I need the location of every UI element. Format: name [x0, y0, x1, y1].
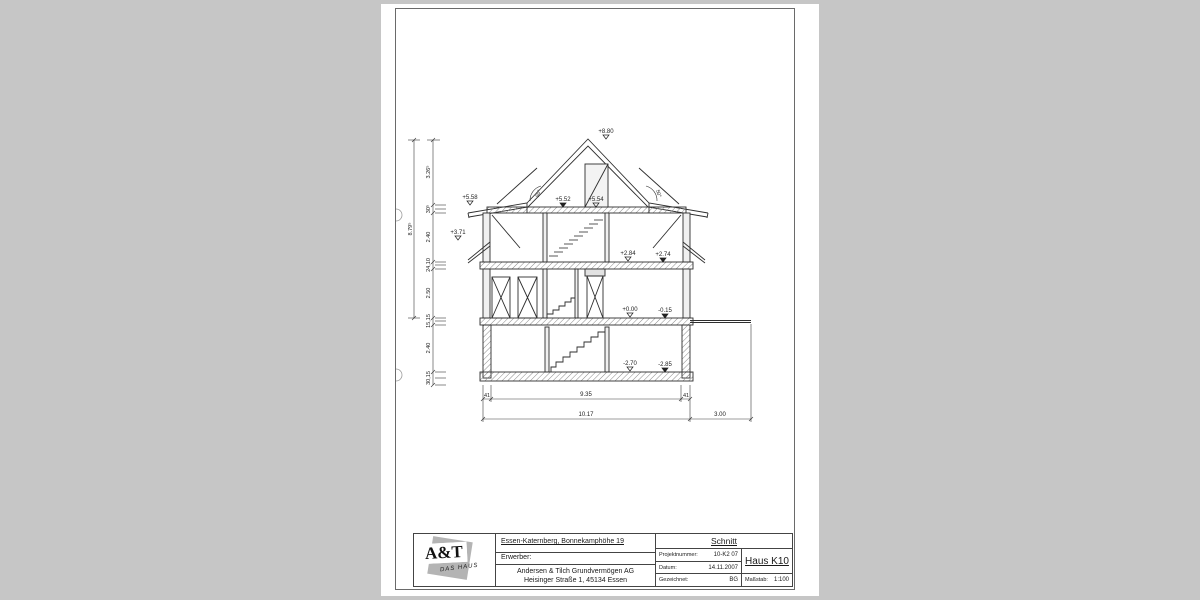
punch-hole-mark	[396, 369, 402, 381]
dim-left-total: 8.79⁵	[407, 223, 414, 236]
project-number-label: Projektnummer:	[659, 552, 698, 558]
project-number-row: Projektnummer: 10-K2 07	[656, 549, 741, 562]
title-block-meta: Schnitt Projektnummer: 10-K2 07 Datum: 1…	[656, 534, 792, 586]
level-attic-b: +5.54	[588, 197, 604, 203]
dim-left-3: 24,10	[426, 258, 432, 272]
section-drawing: +8.80 +5.58 +5.52 +5.54 +3.71 +2.84 +2.7…	[380, 100, 830, 440]
scale-label: Maßstab:	[745, 577, 768, 583]
roof-angle-right: 50°	[654, 189, 662, 198]
title-block-project-info: Essen-Katernberg, Bonnekamphöhe 19 Erwer…	[496, 534, 656, 586]
house-id-text: Haus K10	[745, 556, 789, 567]
drawn-by-row: Gezeichnet: BG	[656, 574, 741, 586]
logo-text: A&T	[421, 542, 468, 564]
level-attic-a: +5.52	[555, 197, 571, 203]
title-block: A&T DAS HAUS Essen-Katernberg, Bonnekamp…	[413, 533, 793, 587]
client-company: Andersen & Tilch Grundvermögen AG Heisin…	[496, 565, 655, 586]
viewer-canvas: +8.80 +5.58 +5.52 +5.54 +3.71 +2.84 +2.7…	[0, 0, 1200, 600]
punch-hole-mark	[396, 209, 402, 221]
level-kg-b: -2.85	[658, 362, 672, 368]
dim-bottom-1017: 10.17	[578, 412, 594, 418]
house-id: Haus K10	[742, 549, 792, 574]
document-title: Schnitt	[656, 534, 792, 549]
dim-left-4: 2.50	[426, 288, 432, 299]
project-number-value: 10-K2 07	[714, 552, 738, 558]
site-address: Essen-Katernberg, Bonnekamphöhe 19	[496, 534, 655, 553]
level-og-a: +2.84	[620, 251, 636, 257]
level-eave-left: +5.58	[462, 195, 478, 201]
dim-bottom-41-right: 41	[683, 393, 689, 399]
dim-left-6: 2.40	[426, 343, 432, 354]
house-id-column: Haus K10 Maßstab: 1:100	[742, 549, 792, 586]
drawn-by-label: Gezeichnet:	[659, 577, 688, 583]
date-label: Datum:	[659, 565, 677, 571]
roof-angle-left: 50°	[535, 189, 543, 198]
scale-value: 1:100	[774, 577, 789, 583]
level-skirt-left: +3.71	[450, 230, 466, 236]
client-company-address: Heisinger Straße 1, 45134 Essen	[496, 576, 655, 585]
scale-row: Maßstab: 1:100	[742, 574, 792, 586]
dim-left-0: 3.26⁵	[425, 166, 432, 179]
dim-left-2: 2.40	[426, 232, 432, 243]
date-value: 14.11.2007	[708, 565, 738, 571]
meta-rows: Projektnummer: 10-K2 07 Datum: 14.11.200…	[656, 549, 742, 586]
date-row: Datum: 14.11.2007	[656, 562, 741, 575]
house-section	[468, 139, 751, 381]
document-title-text: Schnitt	[711, 536, 737, 546]
site-address-text: Essen-Katernberg, Bonnekamphöhe 19	[501, 538, 624, 545]
company-logo: A&T DAS HAUS	[414, 534, 496, 586]
client-company-name: Andersen & Tilch Grundvermögen AG	[496, 567, 655, 576]
level-eg-b: -0.15	[658, 308, 672, 314]
dim-left-1: 30⁵	[425, 205, 432, 213]
level-ridge: +8.80	[598, 129, 614, 135]
dim-bottom-935: 9.35	[580, 392, 592, 398]
drawn-by-value: BG	[729, 577, 738, 583]
level-kg-a: -2.70	[623, 361, 637, 367]
dim-left-7: 30,15	[426, 371, 432, 385]
level-eg-a: +0.00	[622, 307, 638, 313]
dim-left-5: 15,15	[426, 314, 432, 328]
level-og-b: +2.74	[655, 252, 671, 258]
erwerber-label: Erwerber:	[496, 553, 655, 565]
dim-bottom-41-left: 41	[484, 393, 490, 399]
dim-bottom-300: 3.00	[714, 412, 726, 418]
